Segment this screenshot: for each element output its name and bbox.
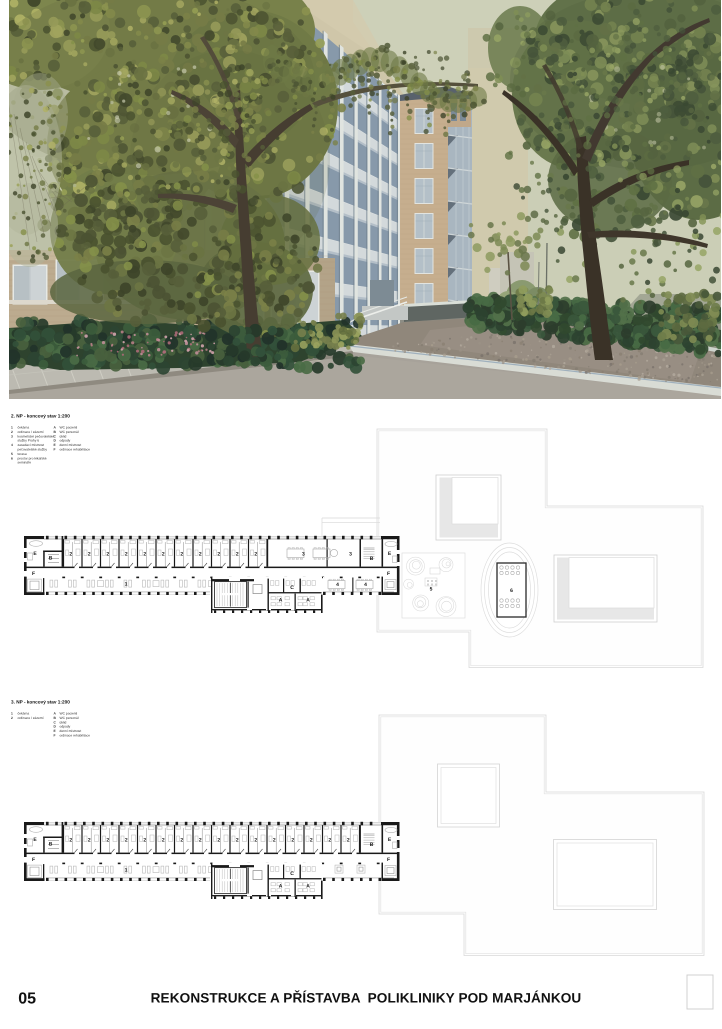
svg-text:2: 2: [106, 552, 109, 558]
svg-text:pečovatelské služby: pečovatelské služby: [18, 448, 48, 452]
svg-text:A: A: [54, 426, 57, 430]
svg-text:A: A: [279, 884, 283, 890]
svg-text:D: D: [54, 725, 57, 729]
svg-text:B: B: [54, 430, 57, 434]
svg-text:2: 2: [273, 838, 276, 844]
svg-text:zasedací místnost: zasedací místnost: [18, 443, 45, 447]
svg-text:2: 2: [11, 430, 13, 434]
svg-text:denní místnost: denní místnost: [60, 443, 82, 447]
svg-text:F: F: [32, 571, 35, 577]
svg-text:A: A: [306, 884, 310, 890]
svg-text:2: 2: [143, 838, 146, 844]
svg-text:úklid: úklid: [60, 720, 67, 724]
svg-text:2: 2: [143, 552, 146, 558]
svg-text:3: 3: [11, 434, 13, 438]
svg-text:2: 2: [162, 838, 165, 844]
svg-text:čekárna: čekárna: [18, 712, 30, 716]
svg-text:semináře: semináře: [18, 461, 32, 465]
svg-text:2: 2: [162, 552, 165, 558]
svg-text:2: 2: [125, 552, 128, 558]
svg-text:3: 3: [349, 552, 352, 558]
svg-text:2: 2: [236, 552, 239, 558]
svg-text:F: F: [54, 448, 56, 452]
svg-text:2: 2: [254, 838, 257, 844]
svg-text:2. NP - koncový stav 1:200: 2. NP - koncový stav 1:200: [11, 414, 70, 419]
svg-text:2: 2: [180, 552, 183, 558]
svg-text:4: 4: [364, 582, 367, 588]
svg-text:2: 2: [180, 838, 183, 844]
svg-text:3. NP - koncový stav 1:200: 3. NP - koncový stav 1:200: [11, 700, 70, 705]
svg-text:2: 2: [310, 838, 313, 844]
svg-text:A: A: [54, 712, 57, 716]
svg-text:terasa: terasa: [18, 452, 27, 456]
svg-text:B: B: [49, 556, 53, 562]
svg-text:ordinace rehabilitace: ordinace rehabilitace: [60, 734, 91, 738]
svg-text:2: 2: [254, 552, 257, 558]
svg-text:2: 2: [88, 552, 91, 558]
svg-text:ordinace / zázemí: ordinace / zázemí: [18, 430, 44, 434]
svg-text:B: B: [370, 556, 374, 562]
svg-text:2: 2: [11, 716, 13, 720]
svg-text:2: 2: [69, 838, 72, 844]
svg-text:D: D: [54, 439, 57, 443]
svg-text:služby Prahy 6: služby Prahy 6: [18, 439, 40, 443]
svg-text:odpady: odpady: [60, 725, 71, 729]
svg-text:C: C: [290, 585, 294, 591]
svg-text:A: A: [306, 598, 310, 604]
svg-text:C: C: [54, 434, 57, 438]
svg-text:WC personál: WC personál: [60, 430, 79, 434]
svg-text:1: 1: [125, 582, 128, 588]
svg-text:odpady: odpady: [60, 439, 71, 443]
svg-text:1: 1: [11, 712, 13, 716]
svg-text:4: 4: [336, 582, 339, 588]
svg-text:F: F: [54, 734, 56, 738]
svg-text:A: A: [279, 598, 283, 604]
svg-text:E: E: [54, 443, 57, 447]
svg-text:prostor pro lékařské: prostor pro lékařské: [18, 456, 47, 460]
svg-text:WC personál: WC personál: [60, 716, 79, 720]
svg-text:B: B: [370, 842, 374, 848]
svg-text:C: C: [54, 720, 57, 724]
svg-text:2: 2: [199, 552, 202, 558]
svg-text:WC pacienti: WC pacienti: [60, 712, 78, 716]
svg-text:F: F: [32, 857, 35, 863]
svg-text:2: 2: [69, 552, 72, 558]
svg-text:5: 5: [11, 452, 13, 456]
svg-text:B: B: [54, 716, 57, 720]
svg-text:2: 2: [125, 838, 128, 844]
svg-text:1: 1: [125, 868, 128, 874]
svg-text:2: 2: [347, 838, 350, 844]
svg-text:denní místnost: denní místnost: [60, 729, 82, 733]
svg-text:1: 1: [11, 426, 13, 430]
svg-text:2: 2: [106, 838, 109, 844]
svg-text:E: E: [54, 729, 57, 733]
svg-text:4: 4: [11, 443, 13, 447]
svg-text:5: 5: [430, 587, 433, 593]
svg-text:2: 2: [88, 838, 91, 844]
svg-text:úklid: úklid: [60, 434, 67, 438]
svg-text:C: C: [290, 871, 294, 877]
svg-text:2: 2: [328, 838, 331, 844]
svg-text:F: F: [387, 857, 390, 863]
svg-text:2: 2: [236, 838, 239, 844]
svg-text:2: 2: [199, 838, 202, 844]
svg-text:3: 3: [302, 552, 305, 558]
svg-text:2: 2: [217, 838, 220, 844]
svg-text:B: B: [49, 842, 53, 848]
svg-text:ordinace rehabilitace: ordinace rehabilitace: [60, 448, 91, 452]
svg-text:WC pacienti: WC pacienti: [60, 426, 78, 430]
svg-text:F: F: [387, 571, 390, 577]
svg-text:REKONSTRUKCE A PŘÍSTAVBA POLIK: REKONSTRUKCE A PŘÍSTAVBA POLIKLINIKY POD…: [151, 990, 582, 1006]
svg-text:čekárna: čekárna: [18, 426, 30, 430]
svg-text:kosmetické pečovatelské: kosmetické pečovatelské: [18, 434, 55, 438]
svg-text:05: 05: [18, 991, 36, 1008]
svg-text:6: 6: [11, 456, 13, 460]
svg-text:2: 2: [291, 838, 294, 844]
svg-text:6: 6: [510, 588, 513, 594]
svg-text:ordinace / zázemí: ordinace / zázemí: [18, 716, 44, 720]
svg-text:2: 2: [217, 552, 220, 558]
